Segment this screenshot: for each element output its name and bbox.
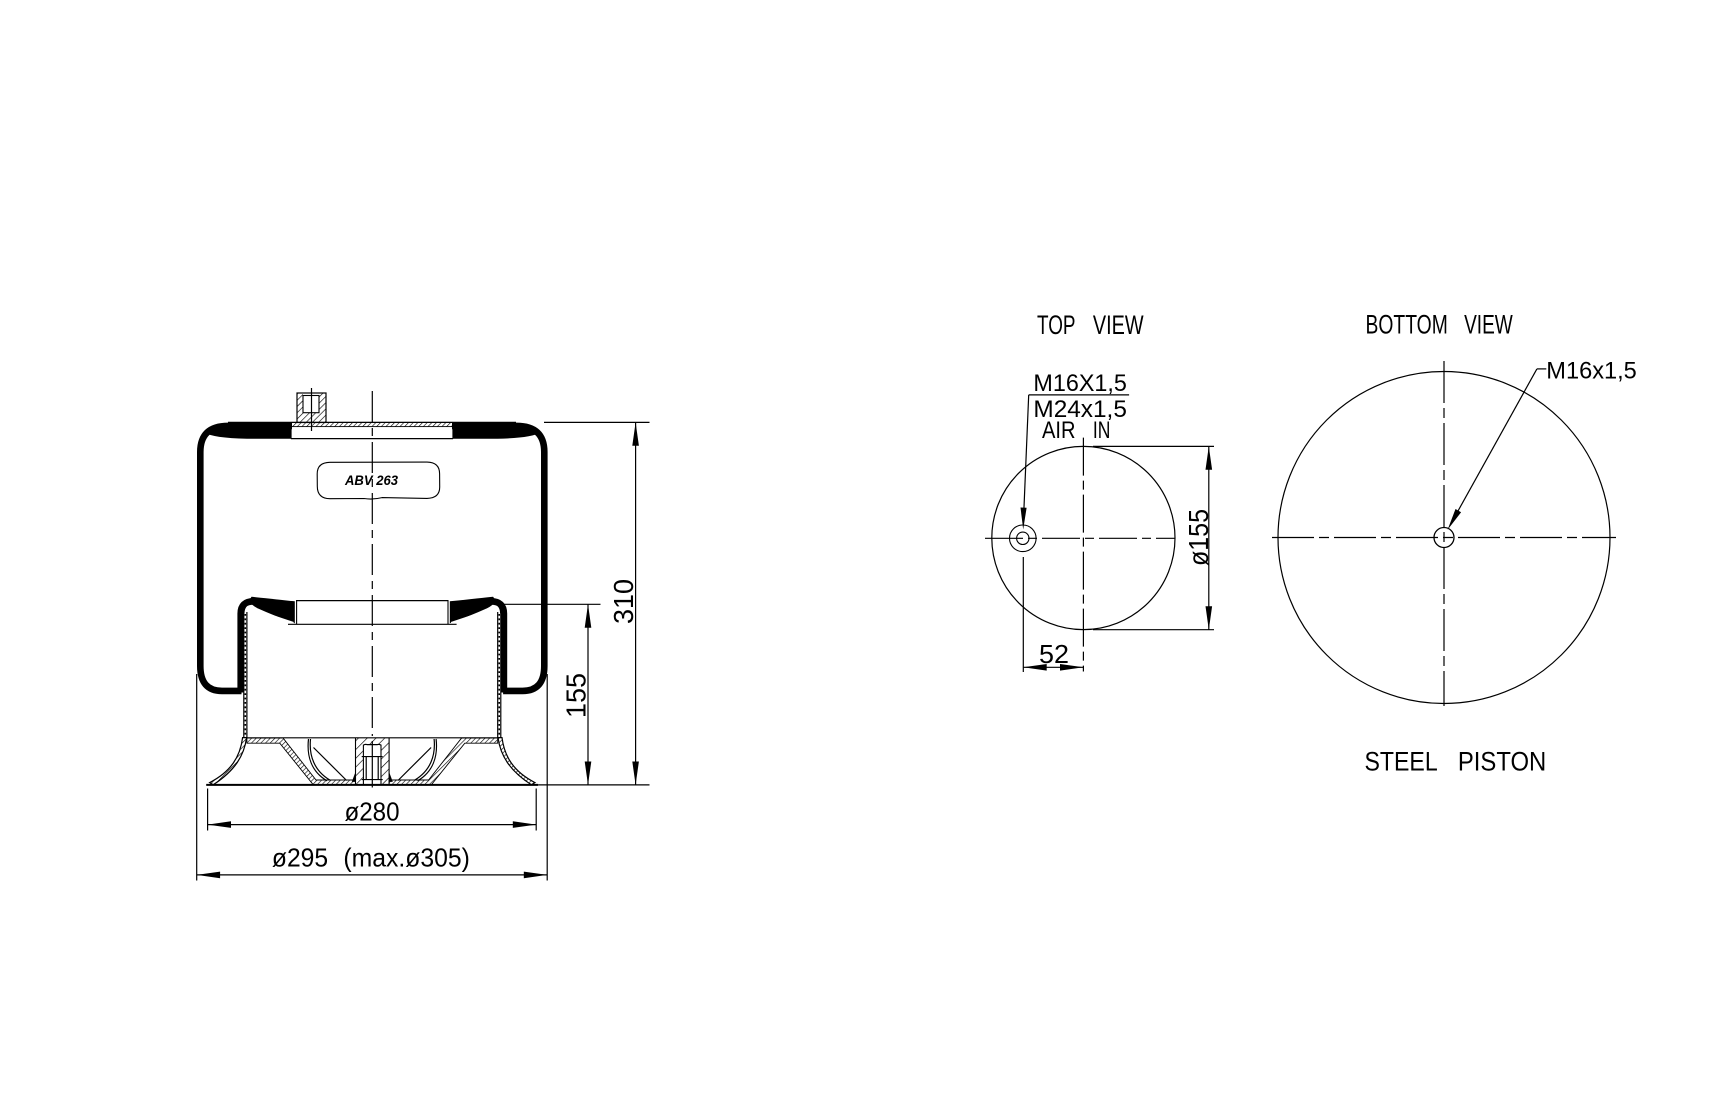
svg-text:VIEW: VIEW (1093, 310, 1144, 340)
svg-text:AIR: AIR (1042, 417, 1076, 444)
svg-text:M16x1,5: M16x1,5 (1546, 357, 1637, 384)
svg-text:IN: IN (1093, 417, 1111, 444)
svg-text:BOTTOM: BOTTOM (1366, 310, 1448, 340)
svg-text:VIEW: VIEW (1464, 310, 1513, 340)
svg-text:ø155: ø155 (1183, 509, 1214, 566)
svg-text:52: 52 (1039, 639, 1069, 669)
svg-text:PISTON: PISTON (1458, 747, 1546, 777)
svg-text:ø295: ø295 (272, 843, 328, 873)
svg-text:M16X1,5: M16X1,5 (1033, 370, 1127, 397)
svg-text:155: 155 (561, 673, 592, 718)
svg-text:(max.ø305): (max.ø305) (343, 843, 470, 873)
svg-text:TOP: TOP (1037, 310, 1076, 340)
svg-text:310: 310 (608, 579, 639, 624)
svg-text:STEEL: STEEL (1365, 747, 1438, 777)
svg-text:ABV 263: ABV 263 (344, 473, 398, 488)
svg-text:ø280: ø280 (345, 797, 400, 827)
